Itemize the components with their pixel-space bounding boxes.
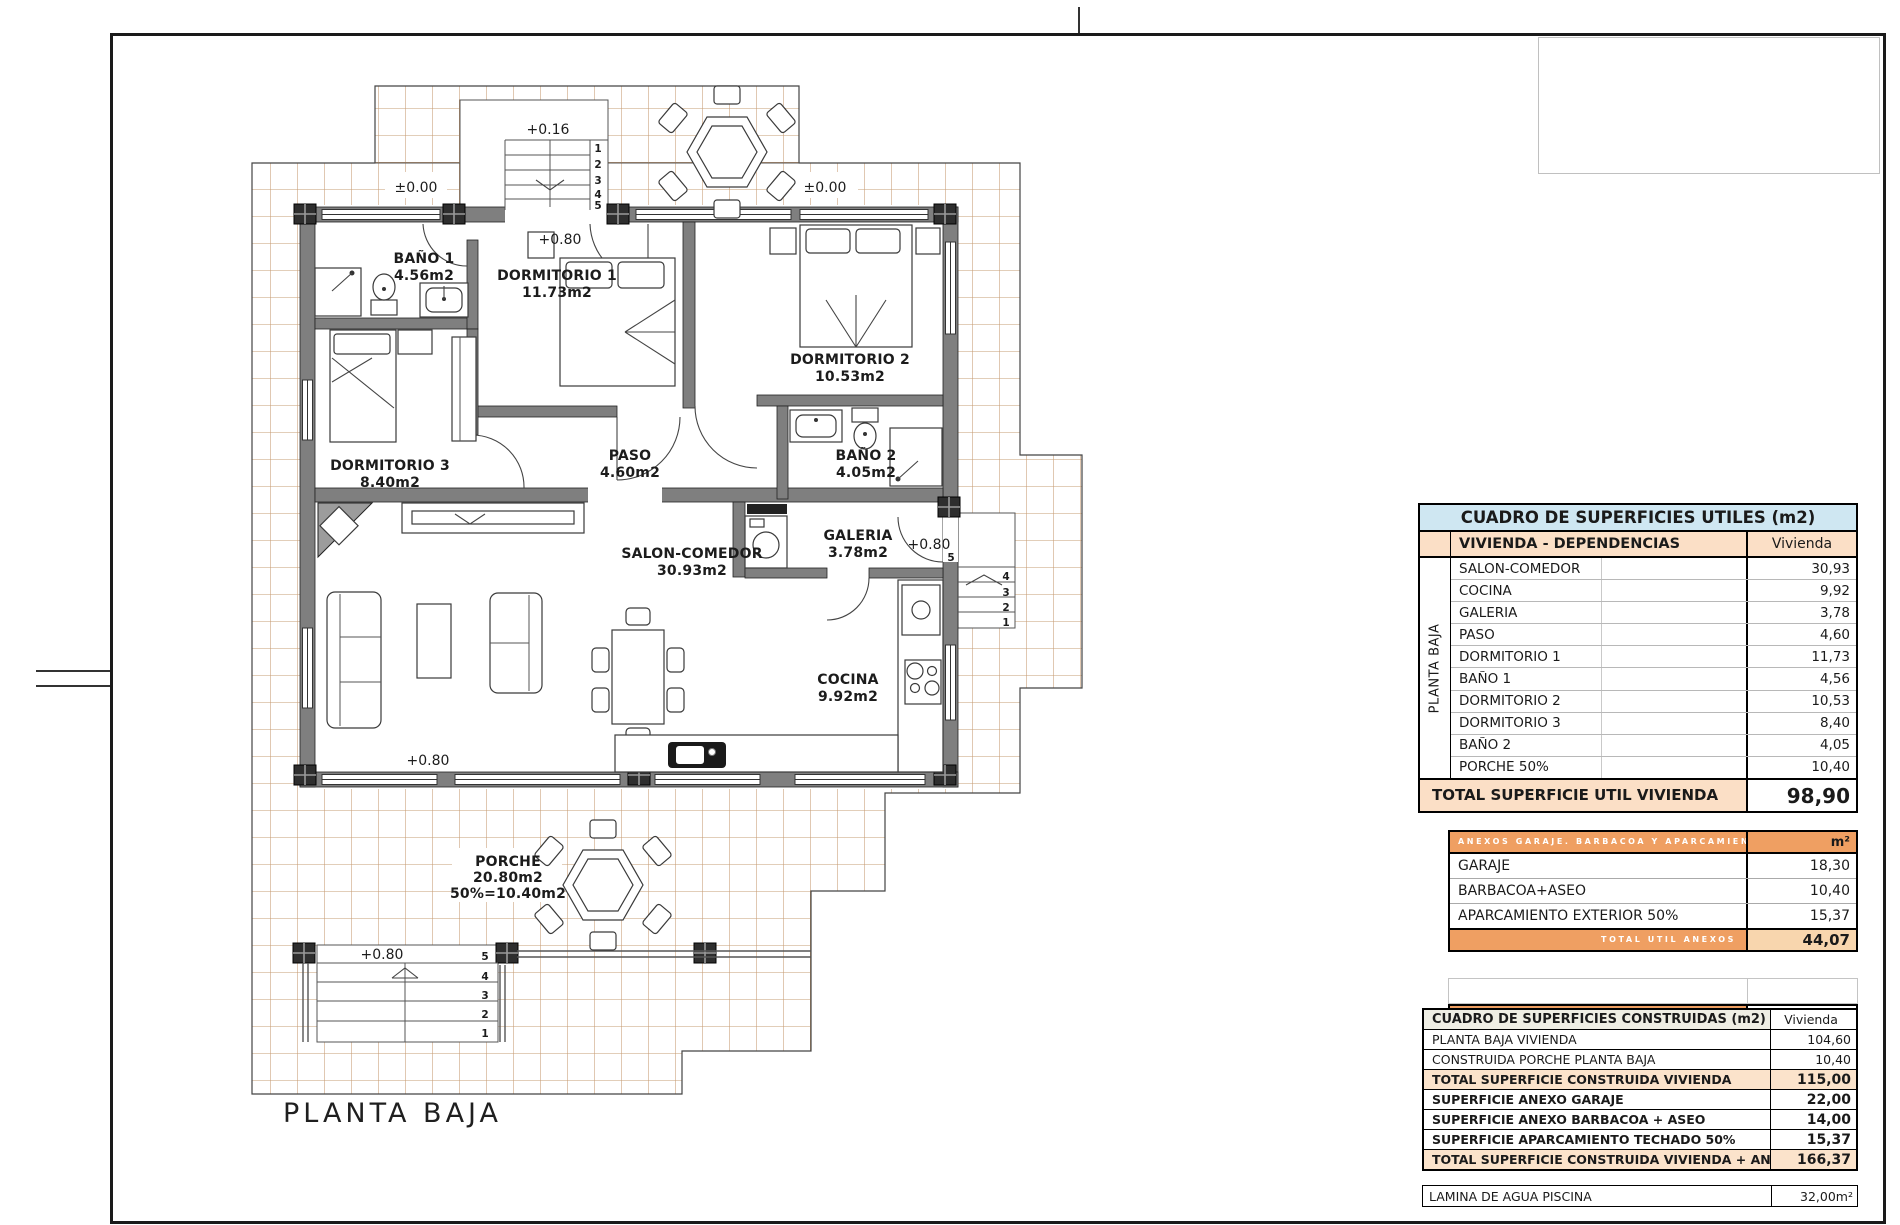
row-label: DORMITORIO 2 [1451,693,1746,709]
row-label: BAÑO 2 [1451,737,1746,753]
room-label-porche: PORCHE [475,854,541,870]
row-value: 10,40 [1746,757,1856,778]
room-area-banio2: 4.05m2 [836,465,896,481]
row-label: GALERIA [1451,605,1746,621]
sheet-border: 1 2 3 4 5 4 3 2 1 5 [110,33,1886,1224]
total-value: 44,07 [1746,930,1856,950]
construidas-header: CUADRO DE SUPERFICIES CONSTRUIDAS (m2) V… [1424,1010,1856,1030]
stair-num: 1 [481,1028,488,1040]
side-label-text: PLANTA BAJA [1428,623,1443,713]
row-value: 32,00m² [1771,1186,1857,1206]
table-title: CUADRO DE SUPERFICIES UTILES (m2) [1420,505,1856,532]
total-label: TOTAL SUPERFICIE CONSTRUIDA VIVIENDA + A… [1424,1152,1770,1167]
level-salon: +0.80 [407,753,450,769]
level-zero-right: ±0.00 [804,180,847,196]
room-area-banio1: 4.56m2 [394,268,454,284]
room-label-salon: SALON-COMEDOR [621,546,762,562]
level-porch-steps: +0.80 [361,947,404,963]
level-galeria: +0.80 [908,537,951,553]
room-label-banio2: BAÑO 2 [836,447,897,464]
total-value: 115,00 [1770,1070,1856,1089]
row-value: 4,05 [1746,735,1856,756]
garden-steps-bay [317,945,498,1042]
stair-num: 3 [481,990,488,1002]
row-label: DORMITORIO 1 [1451,649,1746,665]
room-area-paso: 4.60m2 [600,465,660,481]
drawing-page: 1 2 3 4 5 4 3 2 1 5 [0,0,1900,1225]
total-value: 98,90 [1746,780,1856,811]
table-row: DORMITORIO 38,40 [1451,713,1856,735]
sideboard [402,503,584,533]
table-row: SUPERFICIE APARCAMIENTO TECHADO 50%15,37 [1424,1130,1856,1150]
room-note-porche: 50%=10.40m2 [450,886,566,902]
stair-num: 4 [1002,571,1009,583]
row-label: PASO [1451,627,1746,643]
row-label: APARCAMIENTO EXTERIOR 50% [1450,908,1746,924]
table-row: GALERIA3,78 [1451,602,1856,624]
table-title: CUADRO DE SUPERFICIES CONSTRUIDAS (m2) [1424,1010,1770,1029]
stair-num: 1 [594,143,601,155]
room-area-dorm3: 8.40m2 [360,475,420,491]
row-label: BARBACOA+ASEO [1450,883,1746,899]
stair-num: 2 [481,1009,488,1021]
table-rows: SALON-COMEDOR30,93 COCINA9,92 GALERIA3,7… [1451,558,1856,778]
row-value: 22,00 [1770,1090,1856,1109]
room-label-cocina: COCINA [817,672,878,688]
sofa-right [490,593,542,693]
room-area-porche: 20.80m2 [473,870,543,886]
table-row: GARAJE18,30 [1450,854,1856,879]
anexos-unit: m² [1746,832,1856,852]
room-label-banio1: BAÑO 1 [394,250,455,267]
column-header: Vivienda [1746,532,1856,556]
table-spacer [1448,978,1858,1004]
total-value: 166,37 [1770,1150,1856,1169]
column-header: Vivienda [1770,1010,1856,1029]
table-total-row: TOTAL SUPERFICIE CONSTRUIDA VIVIENDA115,… [1424,1070,1856,1090]
stair-num: 5 [481,951,488,963]
total-label: TOTAL SUPERFICIE UTIL VIVIENDA [1420,780,1746,811]
row-label: PLANTA BAJA VIVIENDA [1424,1032,1770,1047]
table-subheader: VIVIENDA - DEPENDENCIAS Vivienda [1420,532,1856,558]
table-row: PASO4,60 [1451,624,1856,646]
room-label-galeria: GALERIA [823,528,892,544]
row-value: 4,60 [1746,624,1856,645]
stair-num: 2 [1002,602,1009,614]
stair-num: 5 [947,552,954,564]
table-row: CONSTRUIDA PORCHE PLANTA BAJA10,40 [1424,1050,1856,1070]
row-label: SUPERFICIE ANEXO BARBACOA + ASEO [1424,1112,1770,1127]
row-value: 104,60 [1770,1030,1856,1049]
room-area-galeria: 3.78m2 [828,545,888,561]
plan-title: PLANTA BAJA [283,1098,502,1129]
table-superficies-construidas: CUADRO DE SUPERFICIES CONSTRUIDAS (m2) V… [1422,1008,1858,1171]
side-label-planta-baja: PLANTA BAJA [1420,558,1451,778]
table-row: DORMITORIO 111,73 [1451,646,1856,668]
table-row: LAMINA DE AGUA PISCINA 32,00m² [1423,1186,1857,1206]
level-entry-step: +0.16 [527,122,570,138]
stair-num: 5 [594,200,601,212]
room-area-dorm1: 11.73m2 [522,285,592,301]
fold-mark-left-1 [36,670,110,672]
table-row: APARCAMIENTO EXTERIOR 50%15,37 [1450,904,1856,928]
row-label: LAMINA DE AGUA PISCINA [1423,1189,1771,1204]
sofa-left [327,592,381,728]
row-label: GARAJE [1450,858,1746,874]
table-row: DORMITORIO 210,53 [1451,691,1856,713]
stair-num: 3 [594,175,601,187]
table-row: SUPERFICIE ANEXO GARAJE22,00 [1424,1090,1856,1110]
row-value: 4,56 [1746,668,1856,689]
row-value: 3,78 [1746,602,1856,623]
row-value: 10,40 [1746,879,1856,903]
total-label: TOTAL UTIL ANEXOS [1450,930,1746,950]
row-label: BAÑO 1 [1451,671,1746,687]
row-value: 15,37 [1770,1130,1856,1149]
row-label: SALON-COMEDOR [1451,561,1746,577]
room-area-dorm2: 10.53m2 [815,369,885,385]
table-anexos: ANEXOS GARAJE. BARBACOA Y APARCAMIENTO m… [1448,830,1858,952]
room-label-dorm2: DORMITORIO 2 [790,352,910,368]
row-value: 9,92 [1746,580,1856,601]
row-label: PORCHE 50% [1451,759,1746,775]
stair-num: 4 [481,971,488,983]
anexos-header-label: ANEXOS GARAJE. BARBACOA Y APARCAMIENTO [1450,832,1746,852]
row-label: COCINA [1451,583,1746,599]
row-value: 8,40 [1746,713,1856,734]
row-label: SUPERFICIE APARCAMIENTO TECHADO 50% [1424,1132,1770,1147]
stair-num: 3 [1002,587,1009,599]
table-row: PORCHE 50%10,40 [1451,757,1856,778]
room-label-dorm1: DORMITORIO 1 [497,268,617,284]
row-value: 15,37 [1746,904,1856,928]
anexos-rows: GARAJE18,30 BARBACOA+ASEO10,40 APARCAMIE… [1450,854,1856,928]
table-lamina-agua-2: LAMINA DE AGUA PISCINA 32,00m² [1422,1185,1858,1207]
fold-mark-top [1078,7,1080,35]
room-area-salon: 30.93m2 [657,563,727,579]
stair-num: 1 [1002,617,1009,629]
room-area-cocina: 9.92m2 [818,689,878,705]
side-spacer [1420,532,1451,556]
room-label-dorm3: DORMITORIO 3 [330,458,450,474]
row-value: 14,00 [1770,1110,1856,1129]
coffee-table [417,604,451,678]
anexos-header: ANEXOS GARAJE. BARBACOA Y APARCAMIENTO m… [1450,832,1856,854]
row-value: 11,73 [1746,646,1856,667]
row-value: 10,53 [1746,691,1856,712]
anexos-total-row: TOTAL UTIL ANEXOS 44,07 [1450,928,1856,950]
table-row: SALON-COMEDOR30,93 [1451,558,1856,580]
row-label: SUPERFICIE ANEXO GARAJE [1424,1092,1770,1107]
stair-num: 2 [594,159,601,171]
table-row: SUPERFICIE ANEXO BARBACOA + ASEO14,00 [1424,1110,1856,1130]
row-value: 18,30 [1746,854,1856,878]
table-row: COCINA9,92 [1451,580,1856,602]
level-zero-left: ±0.00 [395,180,438,196]
room-label-paso: PASO [609,448,652,464]
row-value: 10,40 [1770,1050,1856,1069]
row-value: 30,93 [1746,558,1856,579]
group-header: VIVIENDA - DEPENDENCIAS [1451,532,1746,556]
level-entry: +0.80 [539,232,582,248]
table-superficies-utiles: CUADRO DE SUPERFICIES UTILES (m2) VIVIEN… [1418,503,1858,813]
table-row: BAÑO 14,56 [1451,668,1856,690]
total-label: TOTAL SUPERFICIE CONSTRUIDA VIVIENDA [1424,1072,1770,1087]
table-row: PLANTA BAJA VIVIENDA104,60 [1424,1030,1856,1050]
table-row: BAÑO 24,05 [1451,735,1856,757]
table-total-row: TOTAL SUPERFICIE UTIL VIVIENDA 98,90 [1420,778,1856,811]
fold-mark-left-2 [36,685,110,687]
table-row: BARBACOA+ASEO10,40 [1450,879,1856,904]
row-label: DORMITORIO 3 [1451,715,1746,731]
table-total-row: TOTAL SUPERFICIE CONSTRUIDA VIVIENDA + A… [1424,1150,1856,1169]
row-label: CONSTRUIDA PORCHE PLANTA BAJA [1424,1052,1770,1067]
